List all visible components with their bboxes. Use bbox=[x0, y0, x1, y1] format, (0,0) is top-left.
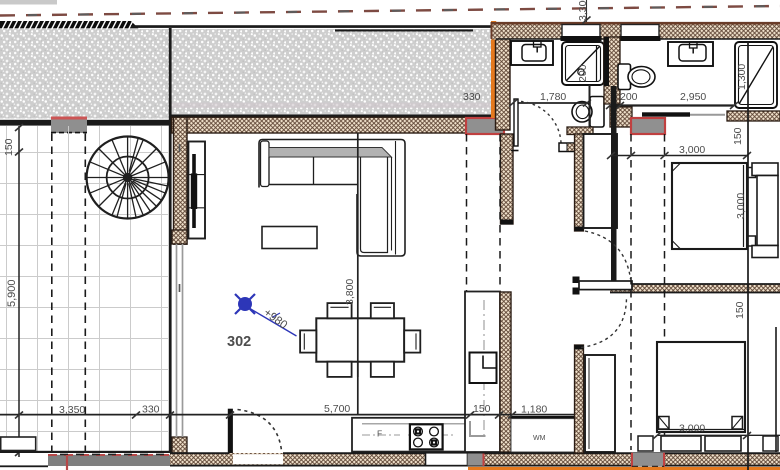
svg-text:200: 200 bbox=[577, 64, 589, 82]
svg-text:1,180: 1,180 bbox=[521, 404, 547, 416]
svg-text:5,900: 5,900 bbox=[6, 279, 18, 307]
svg-text:1,300: 1,300 bbox=[736, 64, 748, 90]
svg-text:200: 200 bbox=[620, 91, 638, 103]
svg-text:WM: WM bbox=[533, 435, 546, 442]
svg-text:F: F bbox=[377, 429, 382, 439]
svg-text:5,700: 5,700 bbox=[324, 403, 350, 415]
svg-text:3,800: 3,800 bbox=[344, 279, 356, 305]
svg-text:3,300: 3,300 bbox=[577, 0, 589, 21]
svg-text:1,780: 1,780 bbox=[540, 91, 566, 103]
svg-text:150: 150 bbox=[734, 301, 746, 319]
svg-text:3,000: 3,000 bbox=[679, 144, 705, 156]
svg-text:330: 330 bbox=[142, 404, 160, 416]
svg-text:3,350: 3,350 bbox=[59, 404, 85, 416]
svg-text:302: 302 bbox=[227, 334, 251, 350]
svg-text:330: 330 bbox=[463, 91, 481, 103]
svg-text:150: 150 bbox=[732, 127, 744, 145]
svg-text:2,950: 2,950 bbox=[680, 91, 706, 103]
svg-text:150: 150 bbox=[3, 138, 15, 156]
svg-text:150: 150 bbox=[473, 403, 491, 415]
svg-text:3,000: 3,000 bbox=[679, 423, 705, 435]
svg-text:3,000: 3,000 bbox=[735, 193, 747, 219]
